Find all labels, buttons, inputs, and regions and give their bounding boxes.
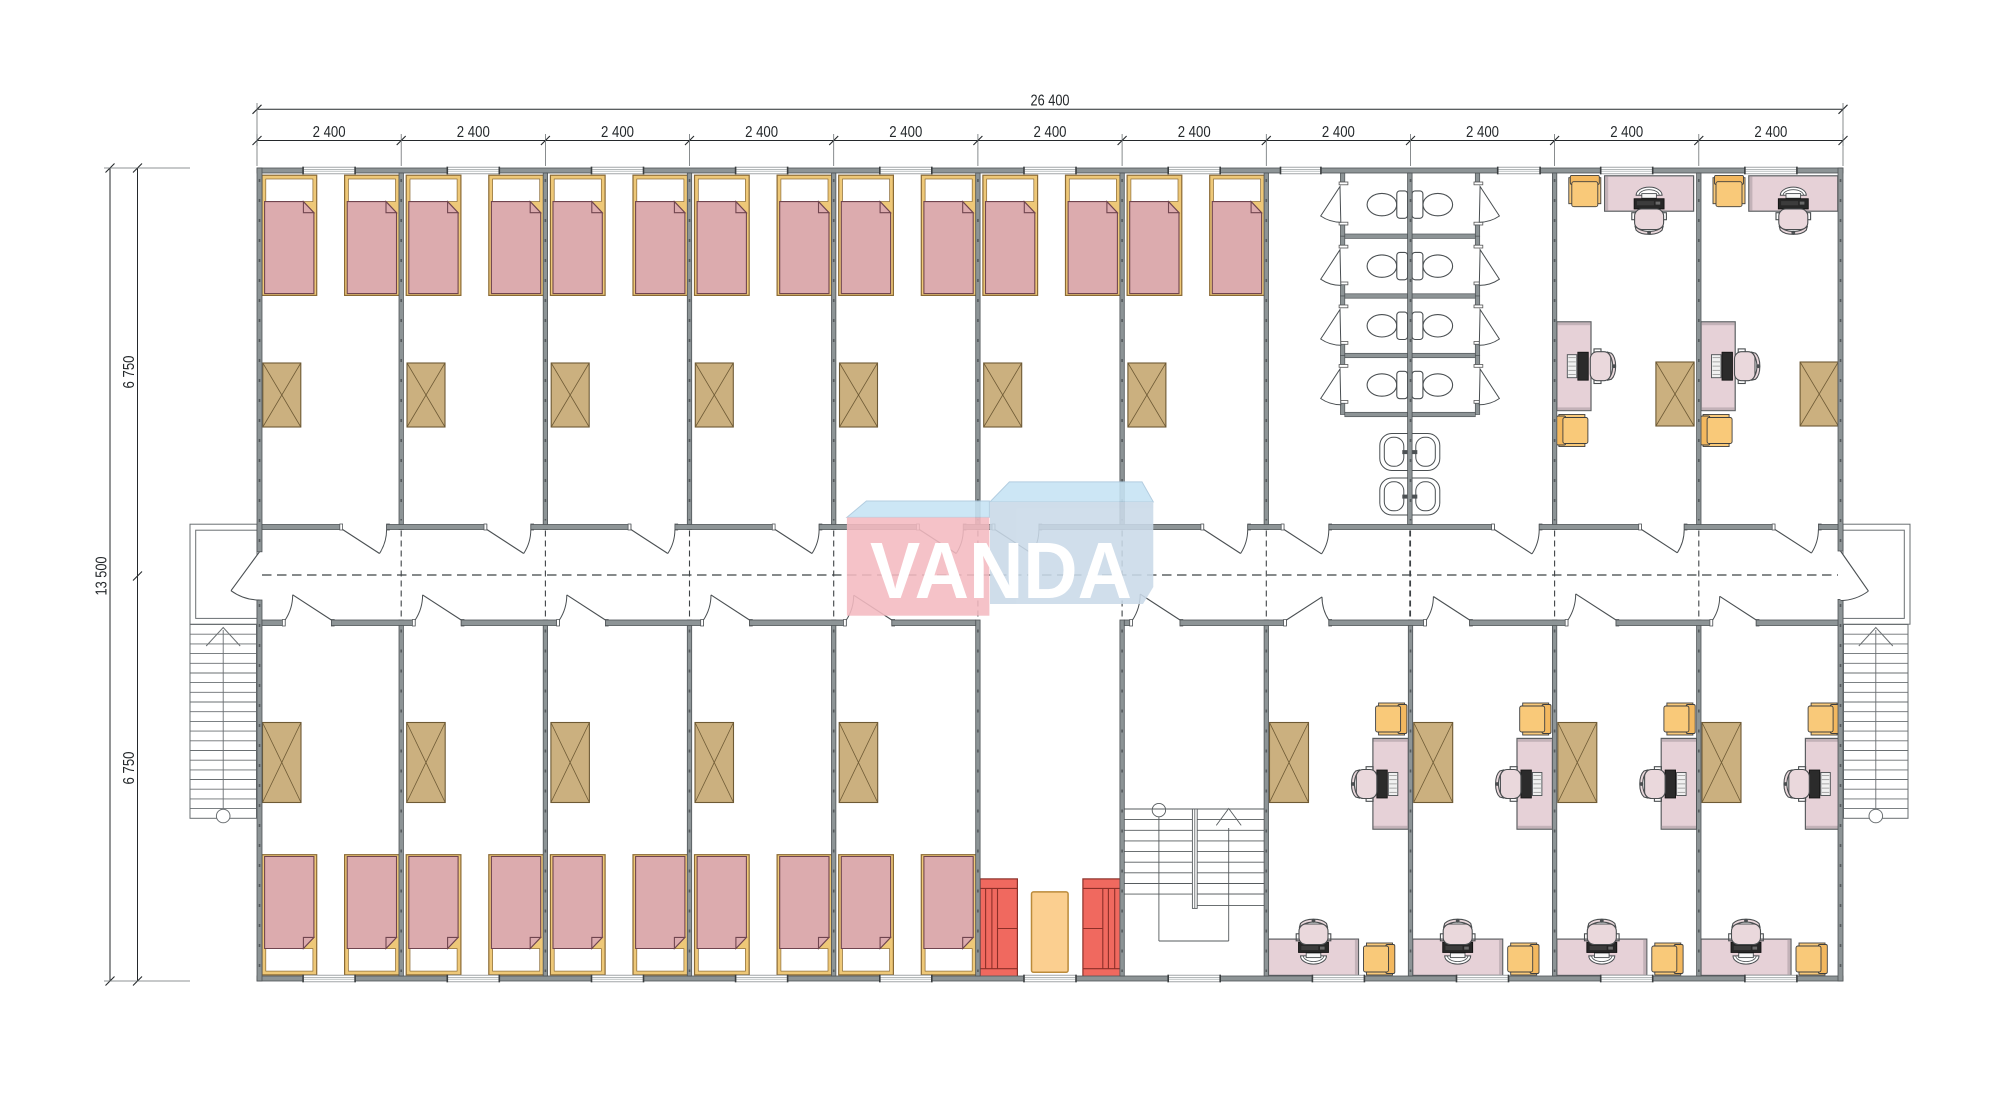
- svg-text:VANDA: VANDA: [870, 526, 1132, 615]
- svg-text:2 400: 2 400: [1034, 124, 1067, 141]
- svg-text:2 400: 2 400: [889, 124, 922, 141]
- svg-text:2 400: 2 400: [1466, 124, 1499, 141]
- svg-text:2 400: 2 400: [1754, 124, 1787, 141]
- svg-text:6 750: 6 750: [121, 751, 138, 784]
- svg-text:26 400: 26 400: [1031, 93, 1070, 110]
- svg-text:13 500: 13 500: [94, 556, 111, 595]
- svg-text:2 400: 2 400: [1322, 124, 1355, 141]
- svg-text:2 400: 2 400: [1178, 124, 1211, 141]
- svg-text:2 400: 2 400: [457, 124, 490, 141]
- svg-text:2 400: 2 400: [313, 124, 346, 141]
- svg-text:2 400: 2 400: [745, 124, 778, 141]
- svg-text:2 400: 2 400: [601, 124, 634, 141]
- svg-text:2 400: 2 400: [1610, 124, 1643, 141]
- svg-text:6 750: 6 750: [121, 355, 138, 388]
